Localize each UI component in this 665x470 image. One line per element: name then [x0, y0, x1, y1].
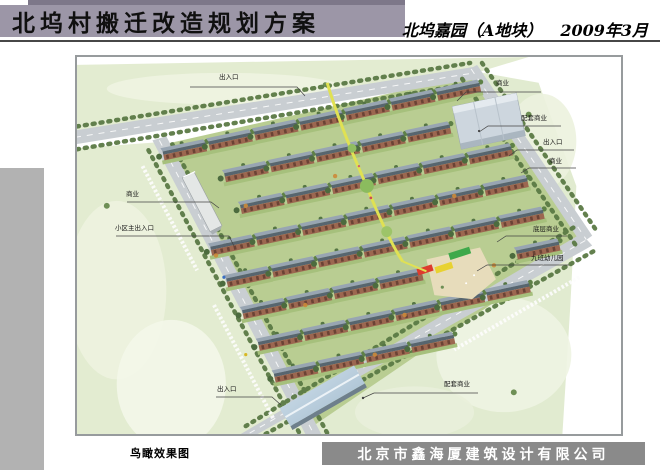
left-gray-strip [0, 168, 44, 470]
label-entrance-right: 出入口 [543, 139, 563, 146]
aerial-rendering-image [77, 57, 621, 434]
title-bar: 北坞村搬迁改造规划方案 [0, 5, 405, 37]
header-right: 北坞嘉园（A地块） 2009年3月 [400, 17, 648, 41]
car [222, 276, 225, 279]
label-entrance-top: 出入口 [219, 74, 239, 81]
label-commercial-right: 商业 [549, 158, 562, 165]
label-main-entrance-left: 小区主出入口 [115, 225, 154, 232]
label-commercial-left: 商业 [126, 191, 139, 198]
project-name: 北坞嘉园（A地块） [402, 17, 542, 41]
aerial-rendering-frame [75, 55, 623, 436]
label-entrance-bottom-left: 出入口 [217, 386, 237, 393]
label-support-commercial-right: 配套商业 [521, 115, 547, 122]
header-rule [0, 40, 660, 42]
plan-board-page: 北坞村搬迁改造规划方案 北坞嘉园（A地块） 2009年3月 [0, 0, 665, 470]
page-title: 北坞村搬迁改造规划方案 [0, 4, 320, 38]
figure-caption: 鸟瞰效果图 [130, 445, 190, 461]
label-support-commercial-bottom: 配套商业 [444, 381, 470, 388]
label-ground-floor-commercial: 底层商业 [533, 226, 559, 233]
label-commercial-right-top: 商业 [496, 80, 509, 87]
project-date: 2009年3月 [560, 17, 648, 41]
company-name: 北京市鑫海厦建筑设计有限公司 [358, 444, 610, 464]
car [244, 353, 247, 356]
company-bar: 北京市鑫海厦建筑设计有限公司 [322, 442, 645, 465]
label-kindergarten: 九班幼儿园 [531, 255, 564, 262]
